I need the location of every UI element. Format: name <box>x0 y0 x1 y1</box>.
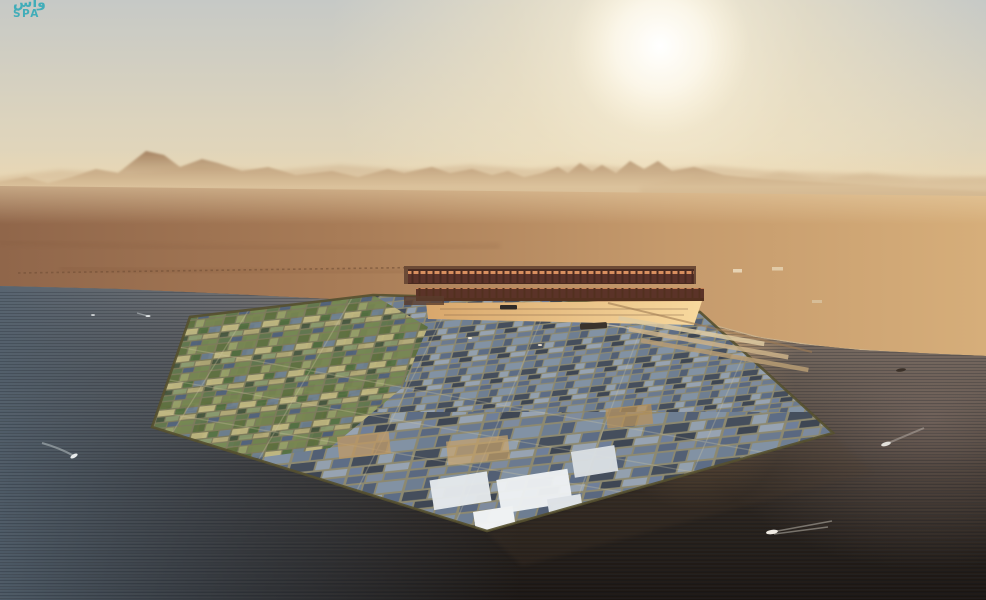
horizon-haze <box>0 150 986 224</box>
distant-shore-building <box>772 267 783 271</box>
small-boat <box>91 314 95 316</box>
scene-canvas <box>0 0 986 600</box>
aerial-city-photo: واس SPA <box>0 0 986 600</box>
container-row-1 <box>408 269 694 284</box>
port-structures-left <box>404 296 444 305</box>
distant-shore-building <box>812 300 822 303</box>
harbor-boat <box>538 344 542 346</box>
ship-in-basin <box>500 305 517 310</box>
container-row-2 <box>416 288 704 301</box>
harbor-boat <box>468 337 472 339</box>
watermark-spa-text: SPA <box>13 10 46 19</box>
spa-watermark: واس SPA <box>13 0 46 19</box>
distant-shore-building <box>733 269 742 273</box>
